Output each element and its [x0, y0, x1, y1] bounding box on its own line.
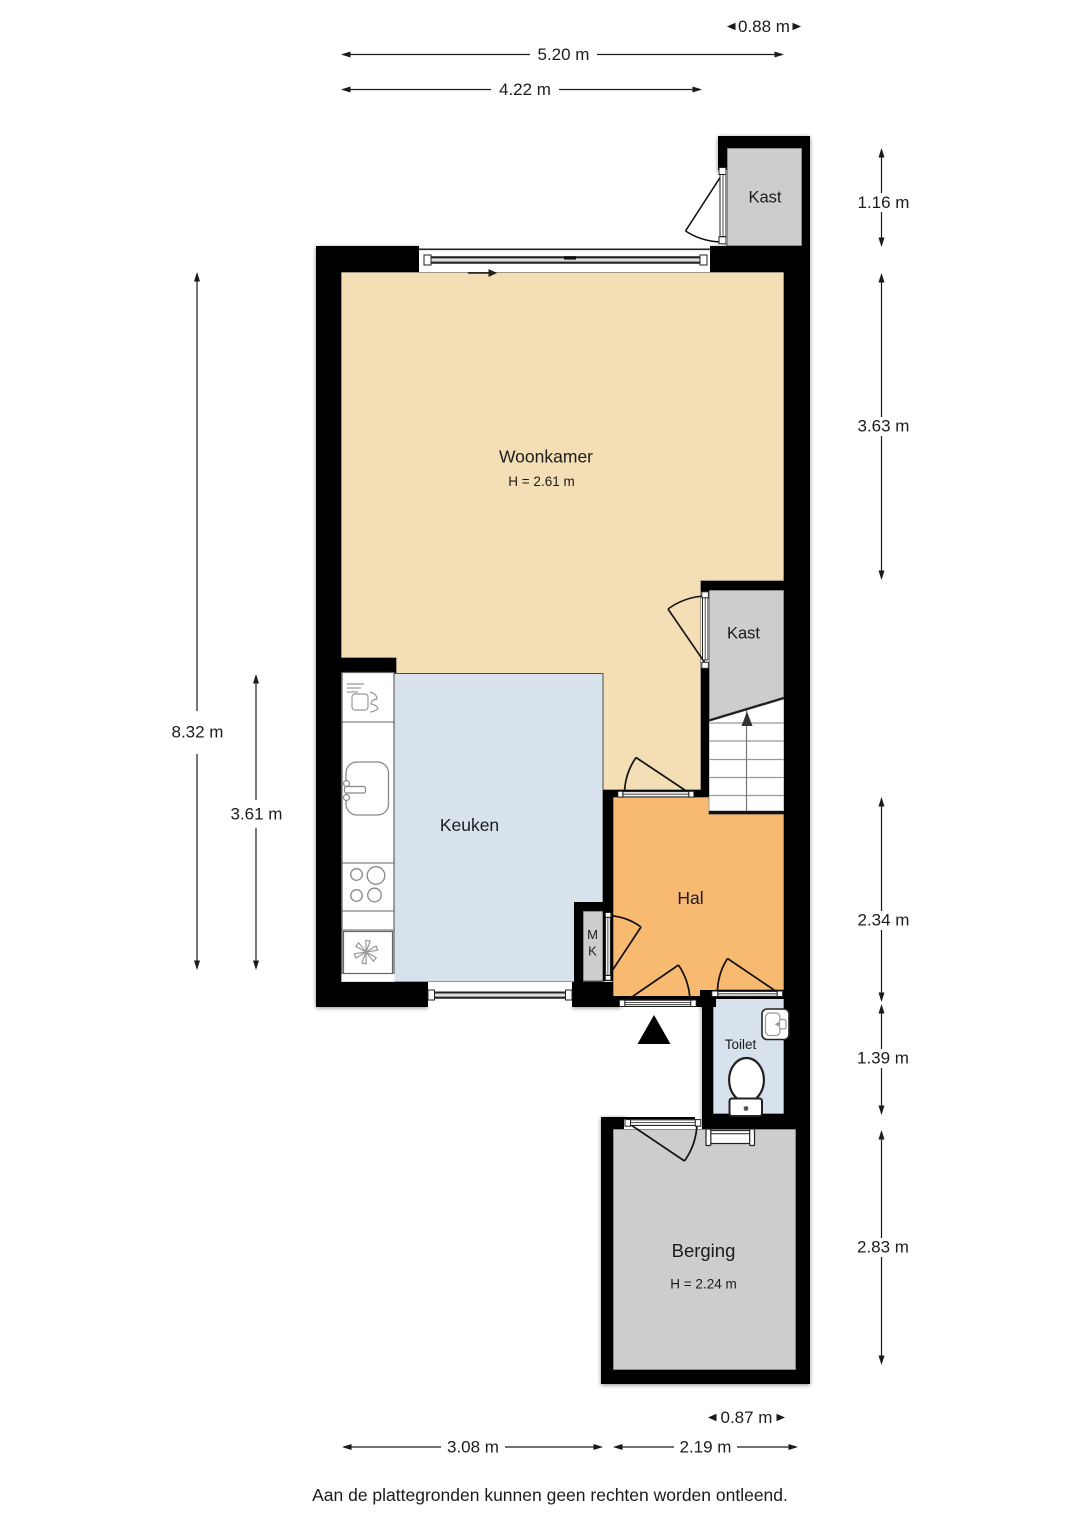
svg-text:Hal: Hal [677, 888, 703, 908]
svg-text:3.63 m: 3.63 m [858, 417, 910, 436]
svg-text:M: M [587, 927, 598, 942]
svg-text:2.19 m: 2.19 m [680, 1438, 732, 1457]
svg-text:1.39 m: 1.39 m [857, 1049, 909, 1068]
svg-text:0.87 m: 0.87 m [721, 1408, 773, 1427]
svg-text:Aan de plattegronden kunnen ge: Aan de plattegronden kunnen geen rechten… [312, 1485, 788, 1505]
svg-text:0.88 m: 0.88 m [738, 17, 790, 36]
svg-text:Berging: Berging [672, 1240, 736, 1261]
svg-text:3.08 m: 3.08 m [447, 1438, 499, 1457]
svg-text:K: K [588, 944, 597, 959]
svg-text:4.22 m: 4.22 m [499, 80, 551, 99]
svg-text:Kast: Kast [727, 625, 760, 643]
svg-text:Keuken: Keuken [440, 815, 499, 835]
svg-text:2.34 m: 2.34 m [858, 911, 910, 930]
svg-text:5.20 m: 5.20 m [538, 45, 590, 64]
svg-text:2.83 m: 2.83 m [857, 1238, 909, 1257]
svg-text:Kast: Kast [748, 189, 781, 207]
svg-text:H = 2.61 m: H = 2.61 m [508, 474, 574, 489]
svg-text:8.32 m: 8.32 m [172, 723, 224, 742]
svg-text:Woonkamer: Woonkamer [499, 447, 593, 467]
svg-text:Toilet: Toilet [725, 1037, 757, 1052]
svg-text:3.61 m: 3.61 m [231, 805, 283, 824]
svg-text:H = 2.24 m: H = 2.24 m [670, 1277, 736, 1292]
svg-text:1.16 m: 1.16 m [858, 193, 910, 212]
